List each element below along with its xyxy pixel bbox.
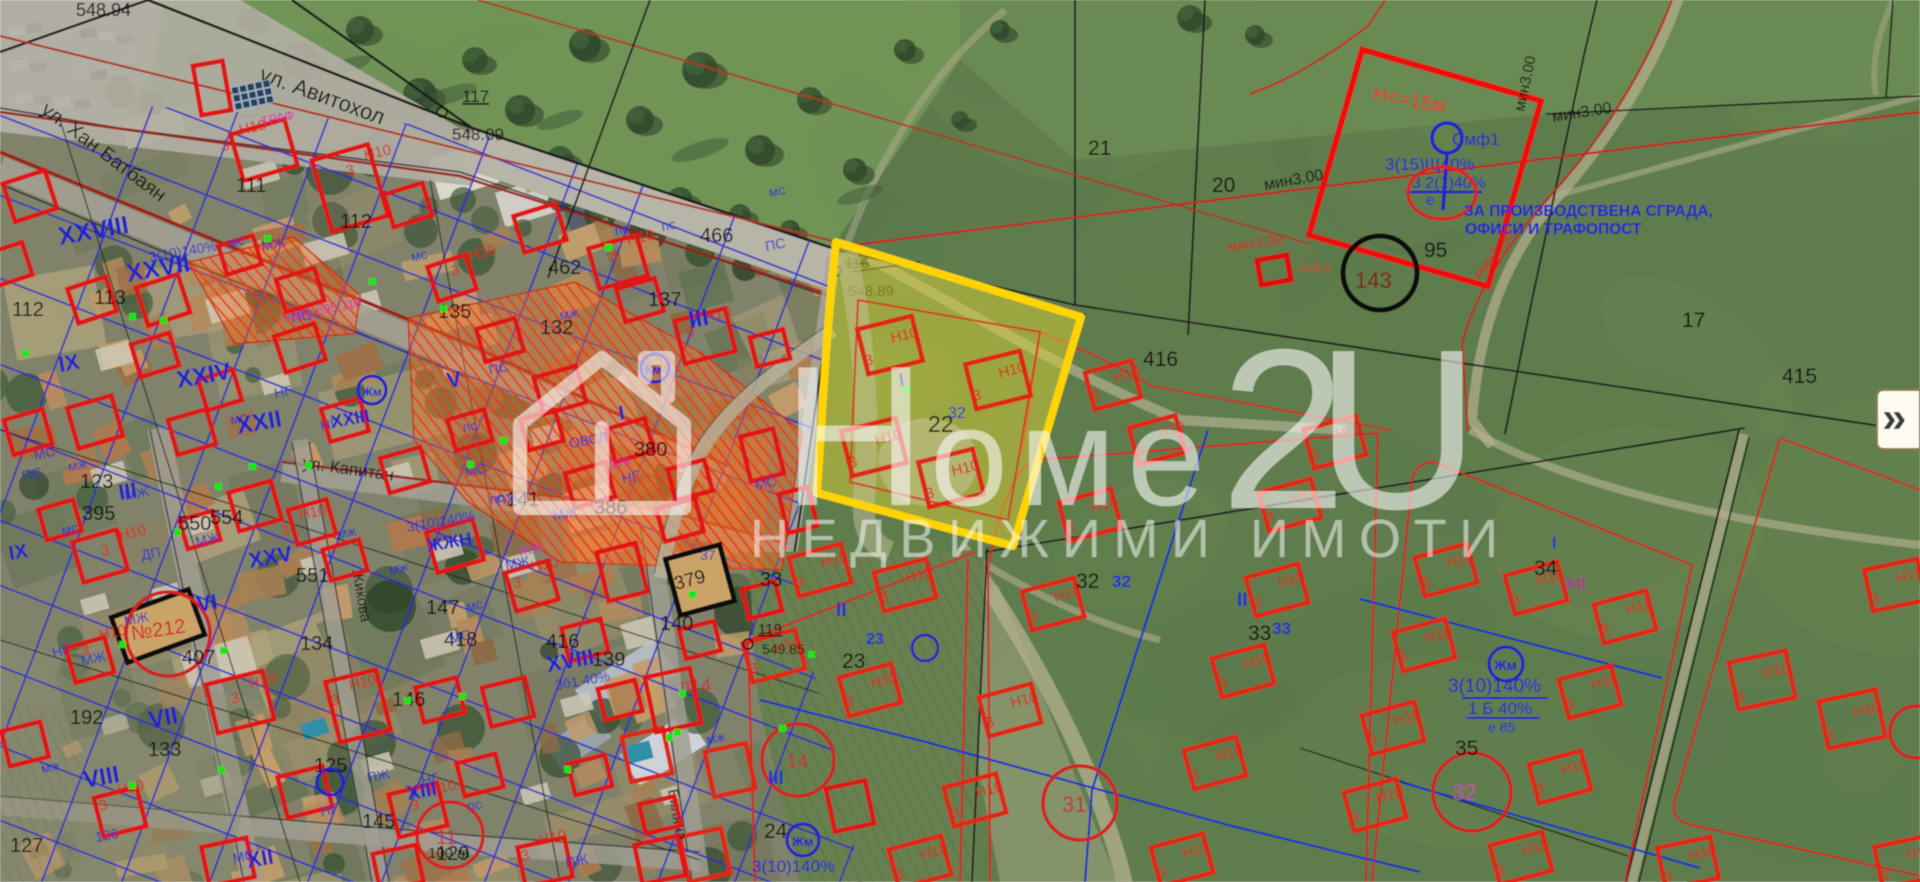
svg-text:3(10)140%: 3(10)140% <box>752 857 835 876</box>
svg-text:I: I <box>1552 535 1556 552</box>
svg-text:462: 462 <box>548 257 581 279</box>
svg-text:23: 23 <box>866 631 884 648</box>
svg-text:мс: мс <box>226 231 246 250</box>
svg-text:мс: мс <box>60 519 80 538</box>
svg-text:III: III <box>768 768 784 789</box>
svg-text:32: 32 <box>1112 572 1131 591</box>
svg-text:192: 192 <box>70 707 103 729</box>
svg-text:33: 33 <box>1272 619 1291 638</box>
svg-text:143: 143 <box>1355 268 1392 293</box>
svg-text:3(10)140%: 3(10)140% <box>1448 676 1541 697</box>
svg-text:мс: мс <box>409 246 429 265</box>
svg-text:416: 416 <box>546 631 579 653</box>
svg-text:416: 416 <box>1143 348 1178 371</box>
svg-text:20: 20 <box>1212 174 1235 197</box>
svg-text:112: 112 <box>12 299 44 321</box>
svg-text:140: 140 <box>660 613 693 635</box>
svg-text:127: 127 <box>10 835 43 857</box>
svg-text:17: 17 <box>1682 309 1705 332</box>
svg-text:554: 554 <box>210 507 243 529</box>
svg-text:Жм: Жм <box>1493 657 1517 673</box>
svg-text:139: 139 <box>592 649 625 671</box>
svg-text:ОФИСИ И ТРАФОПОСТ: ОФИСИ И ТРАФОПОСТ <box>1465 221 1642 238</box>
svg-text:<=3.1: <=3.1 <box>1298 260 1331 275</box>
svg-text:35: 35 <box>1455 737 1478 760</box>
svg-text:21: 21 <box>1088 137 1111 160</box>
svg-text:33: 33 <box>760 569 782 591</box>
svg-text:113: 113 <box>94 287 126 309</box>
svg-text:14: 14 <box>786 751 808 773</box>
svg-text:415: 415 <box>1782 365 1817 388</box>
svg-text:1 Б 40%: 1 Б 40% <box>1468 699 1532 718</box>
svg-text:119: 119 <box>758 621 782 638</box>
svg-text:95: 95 <box>1424 239 1447 262</box>
svg-text:145: 145 <box>362 811 395 833</box>
svg-text:395: 395 <box>82 503 115 525</box>
svg-text:VII: VII <box>146 702 180 734</box>
svg-text:Смф1: Смф1 <box>1452 130 1499 149</box>
svg-text:147: 147 <box>426 597 459 619</box>
svg-text:32: 32 <box>1076 570 1099 593</box>
svg-text:100 m: 100 m <box>428 845 470 862</box>
svg-text:II: II <box>836 600 847 621</box>
svg-text:117: 117 <box>462 87 489 106</box>
svg-text:548.94: 548.94 <box>76 0 131 20</box>
svg-text:мс: мс <box>229 409 249 428</box>
svg-text:466: 466 <box>700 225 733 247</box>
svg-text:мс: мс <box>767 181 787 200</box>
svg-text:111: 111 <box>236 175 266 197</box>
svg-text:31: 31 <box>1062 792 1086 817</box>
svg-text:VI: VI <box>195 589 220 617</box>
svg-text:ЗА ПРОИЗВОДСТВЕНА СГРАДА,: ЗА ПРОИЗВОДСТВЕНА СГРАДА, <box>1464 203 1713 220</box>
svg-text:34): 34) <box>1564 575 1586 592</box>
svg-text:134: 134 <box>300 633 333 655</box>
svg-text:407: 407 <box>182 647 215 669</box>
svg-text:549.85: 549.85 <box>762 641 805 657</box>
svg-text:548.09: 548.09 <box>452 125 504 144</box>
svg-text:380: 380 <box>634 439 667 461</box>
svg-text:»: » <box>1882 393 1906 442</box>
svg-text:133: 133 <box>148 739 181 761</box>
svg-text:551: 551 <box>296 565 329 587</box>
svg-text:II: II <box>1237 590 1248 611</box>
svg-text:112: 112 <box>340 211 372 233</box>
svg-text:123: 123 <box>80 471 113 493</box>
svg-text:е: е <box>1426 192 1434 209</box>
svg-text:24: 24 <box>764 820 788 843</box>
svg-text:Жм: Жм <box>791 834 813 849</box>
svg-text:мс: мс <box>465 595 485 614</box>
svg-text:ДП: ДП <box>140 544 162 563</box>
svg-text:33: 33 <box>1248 622 1271 645</box>
svg-text:34: 34 <box>1534 557 1558 580</box>
svg-text:е 85: е 85 <box>1488 719 1515 735</box>
svg-text:НЕДВИЖИМИ ИМОТИ: НЕДВИЖИМИ ИМОТИ <box>750 509 1498 569</box>
svg-text:137: 137 <box>648 289 681 311</box>
svg-text:Жм: Жм <box>361 385 382 399</box>
svg-text:32: 32 <box>1452 780 1476 805</box>
svg-text:23: 23 <box>842 650 865 673</box>
svg-text:37: 37 <box>700 547 716 563</box>
